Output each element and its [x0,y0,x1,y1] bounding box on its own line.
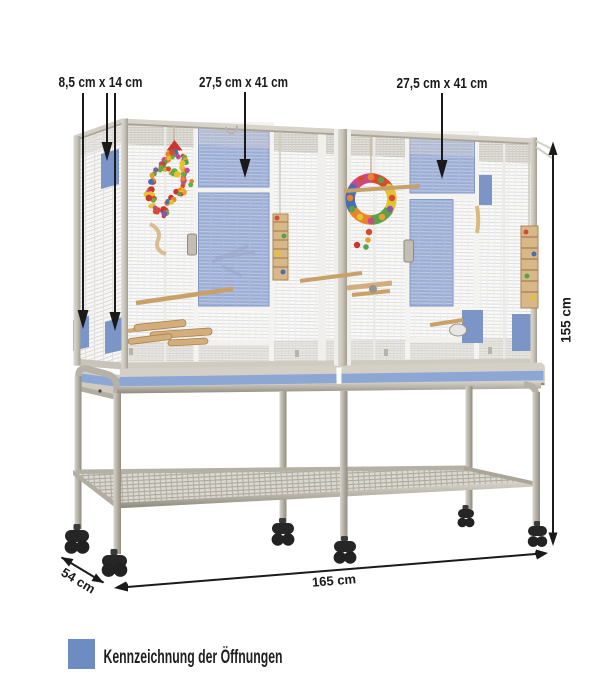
svg-text:27,5 cm x 41 cm: 27,5 cm x 41 cm [397,75,488,92]
svg-text:8,5 cm x 14 cm: 8,5 cm x 14 cm [59,74,143,91]
svg-text:Kennzeichnung der Öffnungen: Kennzeichnung der Öffnungen [104,647,283,668]
svg-text:155 cm: 155 cm [559,297,574,343]
svg-text:27,5 cm x 41 cm: 27,5 cm x 41 cm [199,74,288,91]
